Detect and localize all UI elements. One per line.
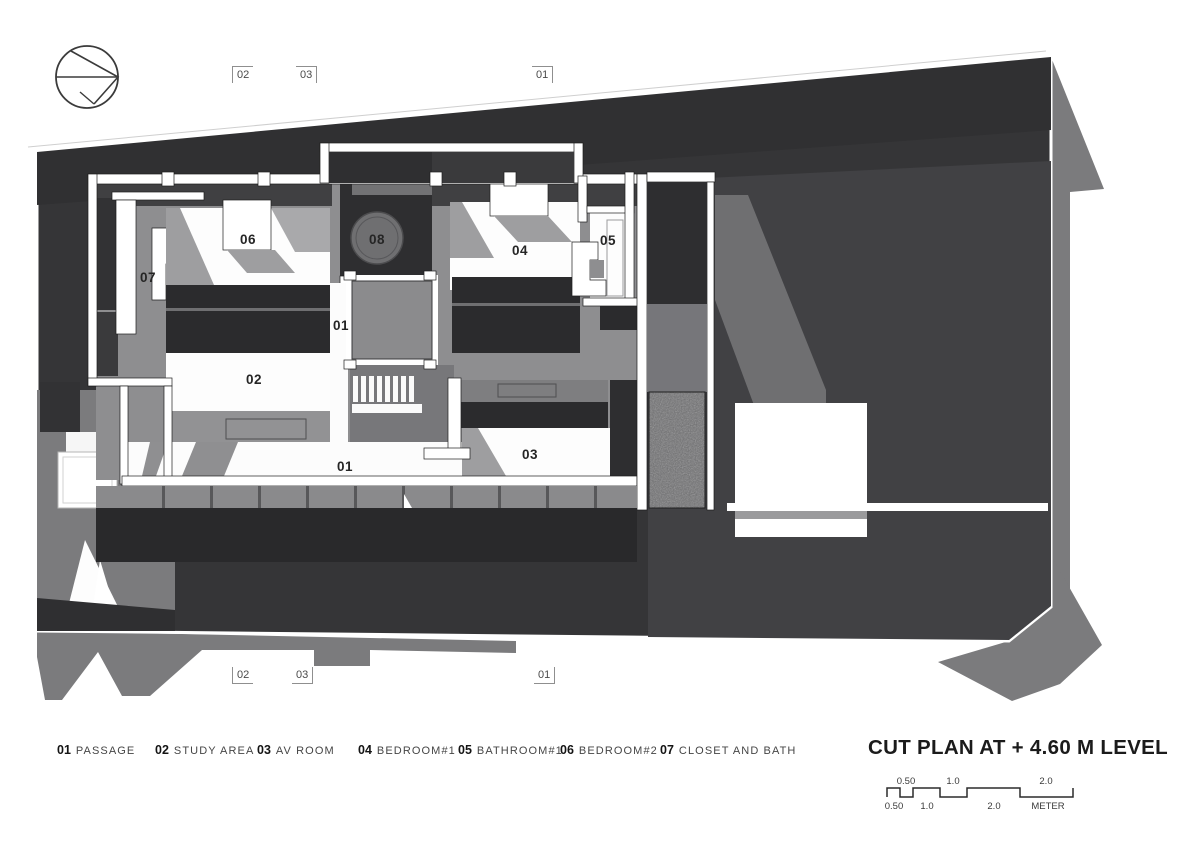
wall-lightwell-west [637,174,647,510]
wall-tick [424,360,436,369]
mass-b [452,277,580,353]
east-slice-dark [610,380,637,476]
vanity-gray [590,260,604,278]
legend-item-bathroom1: 05BATHROOM#1 [458,741,563,759]
legend-num: 06 [560,743,574,757]
legend-item-closet-and-bath: 07CLOSET AND BATH [660,741,796,759]
wall-bottom [122,476,637,486]
mass-a [166,285,330,353]
wall-protrusion-left [320,143,329,183]
section-marker-top-01: 01 [532,66,553,83]
court-dark-patch [40,382,80,432]
protrusion-fill2 [432,152,574,183]
room-label-03: 03 [522,447,538,462]
room-label-08: 08 [369,232,385,247]
mass-b-divider [452,303,580,306]
wall-tick [344,360,356,369]
legend-name: CLOSET AND BATH [679,745,797,757]
legend-name: STUDY AREA [174,745,255,757]
closet-strip [116,200,136,334]
legend-num: 04 [358,743,372,757]
lightwell-dark [647,182,707,304]
terrace-lower [735,519,867,537]
section-marker-bottom-03: 03 [292,667,313,684]
roof-white-band [727,503,1048,511]
section-marker-top-03: 03 [296,66,317,83]
room-label-01-upper: 01 [333,318,349,333]
room-03-dark-band [452,402,608,428]
ground-gray [96,486,637,508]
room-label-06: 06 [240,232,256,247]
legend-item-passage: 01PASSAGE [57,741,135,759]
terrace-divider [735,511,867,519]
room-label-01-lower: 01 [337,459,353,474]
legend-name: PASSAGE [76,745,135,757]
lightwell-gray [647,304,707,392]
room-label-07: 07 [140,270,156,285]
scale-bottom-2: 2.0 [987,801,1000,812]
legend-name: BEDROOM#2 [579,745,658,757]
wall-04-05 [578,176,587,222]
section-marker-top-02: 02 [232,66,253,83]
legend-name: AV ROOM [276,745,335,757]
room-label-04: 04 [512,243,528,258]
section-marker-bottom-02: 02 [232,667,253,684]
wall-lightwell-top [647,172,715,182]
legend-name: BEDROOM#1 [377,745,456,757]
scale-unit-label: METER [1031,801,1064,812]
scale-bottom-0: 0.50 [885,801,904,812]
legend-num: 02 [155,743,169,757]
legend-item-av-room: 03AV ROOM [257,741,335,759]
scale-top-2: 2.0 [1039,776,1052,787]
wall-tick [162,172,174,186]
north-tail [80,92,94,104]
scale-bottom-1: 1.0 [920,801,933,812]
wall-tick [344,271,356,280]
legend-num: 07 [660,743,674,757]
void-well [352,281,432,359]
legend-item-study-area: 02STUDY AREA [155,741,254,759]
wall-stairhall [448,378,461,458]
wall-left [88,174,97,386]
closet-dark-strip2 [96,312,118,376]
scale-bar-line [887,788,1073,797]
drawing-title: CUT PLAN AT + 4.60 M LEVEL [868,736,1168,760]
rooms [96,174,645,476]
legend-num: 01 [57,743,71,757]
room-03-gray-band [452,380,608,402]
wall-protrusion-top [320,143,583,152]
scale-top-0: 0.50 [897,776,916,787]
shadow-bottom-left [37,631,516,700]
wall-tick [424,271,436,280]
legend-name: BATHROOM#1 [477,745,563,757]
legend-item-bedroom2: 06BEDROOM#2 [560,741,658,759]
mass-a-divider [166,308,330,311]
shadow-right [1051,57,1104,607]
wall [112,192,204,200]
drawing-sheet: 06 08 07 04 05 01 02 01 03 0.50 1.0 2.0 … [0,0,1200,849]
wall-lightwell-east [707,182,714,510]
north-arrow-icon [56,46,118,108]
roof-terrace [735,403,867,511]
wall-left-v2 [164,386,172,484]
legend-item-bedroom1: 04BEDROOM#1 [358,741,456,759]
wall-stairhall-h [424,448,470,459]
room-label-02: 02 [246,372,262,387]
floor-plan-drawing: 06 08 07 04 05 01 02 01 03 0.50 1.0 2.0 … [0,0,1200,849]
closet-dark-strip [96,198,118,310]
wall-tick [504,172,516,186]
section-marker-bottom-01: 01 [534,667,555,684]
wall-05-right [625,172,634,306]
scale-bar: 0.50 1.0 2.0 0.50 1.0 2.0 METER [885,776,1073,812]
legend-num: 03 [257,743,271,757]
gravel-texture [649,392,705,508]
wall-left-v1 [120,386,128,484]
legend-num: 05 [458,743,472,757]
room-label-05: 05 [600,233,616,248]
corridor-lower [128,442,462,476]
room-08-gray-band [352,183,432,195]
stair-landing [352,404,422,413]
wall-left-jog [88,378,172,386]
wall-tick [430,172,442,186]
ground-dark [96,508,637,562]
wall-tick [258,172,270,186]
scale-top-1: 1.0 [946,776,959,787]
ground-band [96,486,637,562]
